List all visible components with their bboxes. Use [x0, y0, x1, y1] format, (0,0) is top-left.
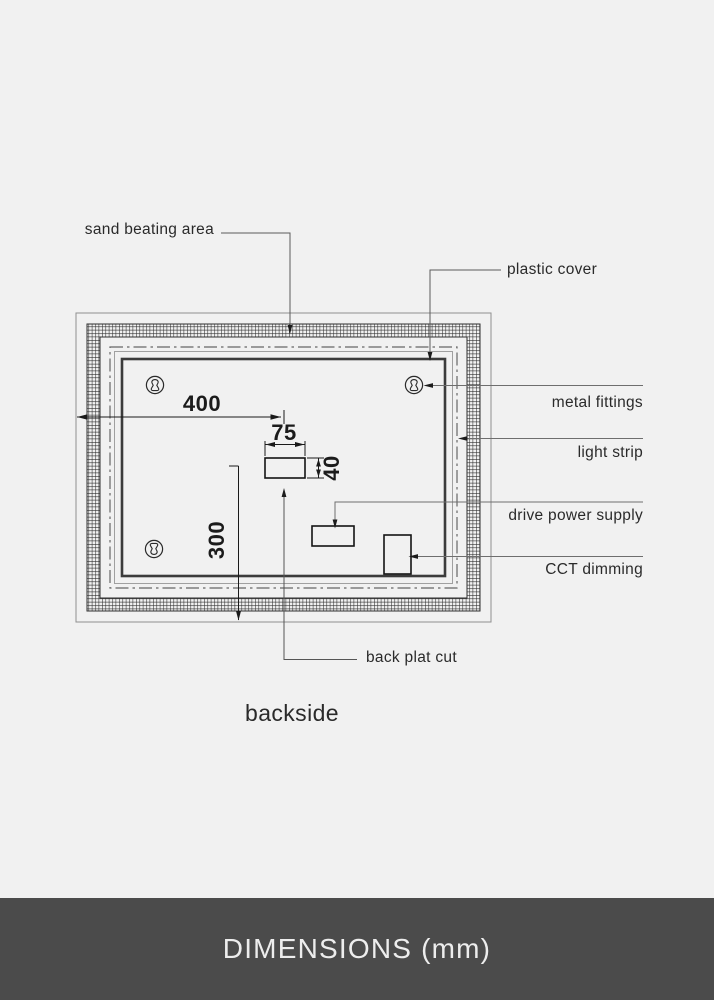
label-cct-dimming: CCT dimming	[545, 561, 643, 579]
dim-300-value: 300	[204, 521, 230, 559]
dimensions-page: sand beating area plastic cover metal fi…	[0, 0, 714, 1000]
dim-40-value: 40	[319, 455, 345, 480]
footer-title: DIMENSIONS (mm)	[223, 933, 491, 965]
leader-sand-beating-area	[221, 233, 292, 334]
label-back-plat-cut: back plat cut	[366, 649, 457, 667]
label-plastic-cover: plastic cover	[507, 261, 597, 279]
keyhole-screw-top-right-icon	[405, 376, 422, 393]
footer-bar: DIMENSIONS (mm)	[0, 898, 714, 1000]
leader-back-plat-cut	[282, 488, 357, 660]
label-drive-power-supply: drive power supply	[508, 507, 643, 525]
drive-power-supply-rect	[312, 526, 354, 546]
leader-cct-dimming	[409, 554, 644, 559]
dim-400-lines	[77, 410, 284, 424]
view-label-backside: backside	[245, 700, 339, 727]
dim-75-value: 75	[271, 420, 296, 446]
cct-dimming-rect	[384, 535, 411, 574]
dim-300-lines	[229, 466, 241, 621]
keyhole-screw-bottom-left-icon	[145, 540, 162, 557]
keyhole-screw-top-left-icon	[146, 376, 163, 393]
label-light-strip: light strip	[578, 444, 643, 462]
dim-400-value: 400	[183, 391, 221, 417]
leader-light-strip	[458, 436, 643, 441]
back-plat-cut-rect	[265, 458, 305, 478]
leader-plastic-cover	[428, 270, 501, 361]
mirror-backside-drawing	[0, 0, 714, 1000]
label-metal-fittings: metal fittings	[552, 394, 643, 412]
label-sand-beating-area: sand beating area	[85, 221, 214, 239]
